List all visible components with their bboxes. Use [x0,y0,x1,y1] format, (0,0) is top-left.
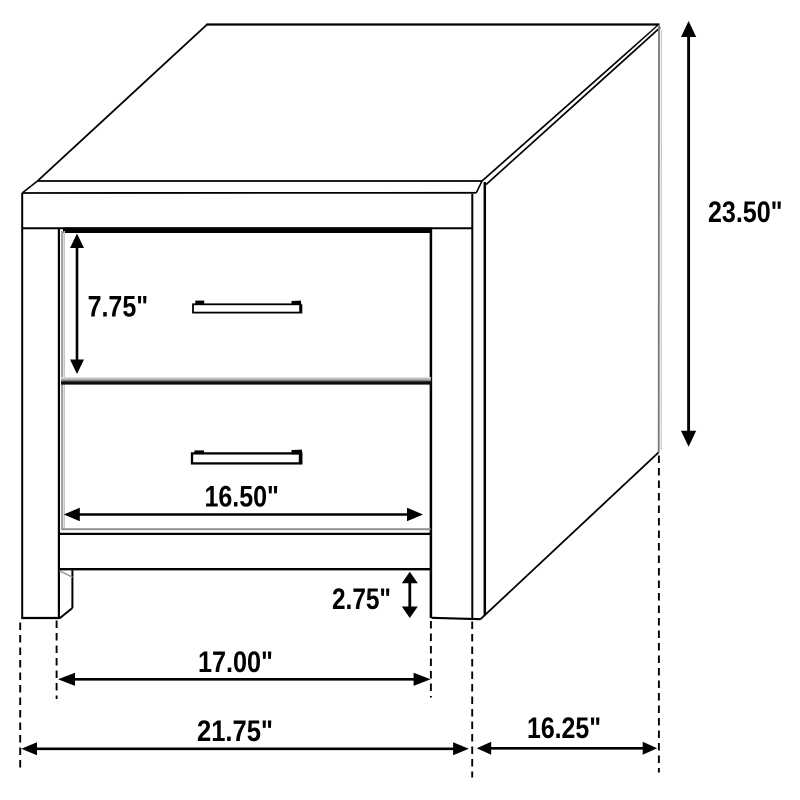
svg-text:16.25": 16.25" [527,712,601,745]
svg-text:16.50": 16.50" [205,481,279,514]
svg-text:7.75": 7.75" [88,291,149,324]
svg-text:2.75": 2.75" [332,583,391,616]
svg-text:17.00": 17.00" [198,646,273,679]
svg-text:21.75": 21.75" [197,715,273,748]
svg-text:23.50": 23.50" [708,196,783,229]
